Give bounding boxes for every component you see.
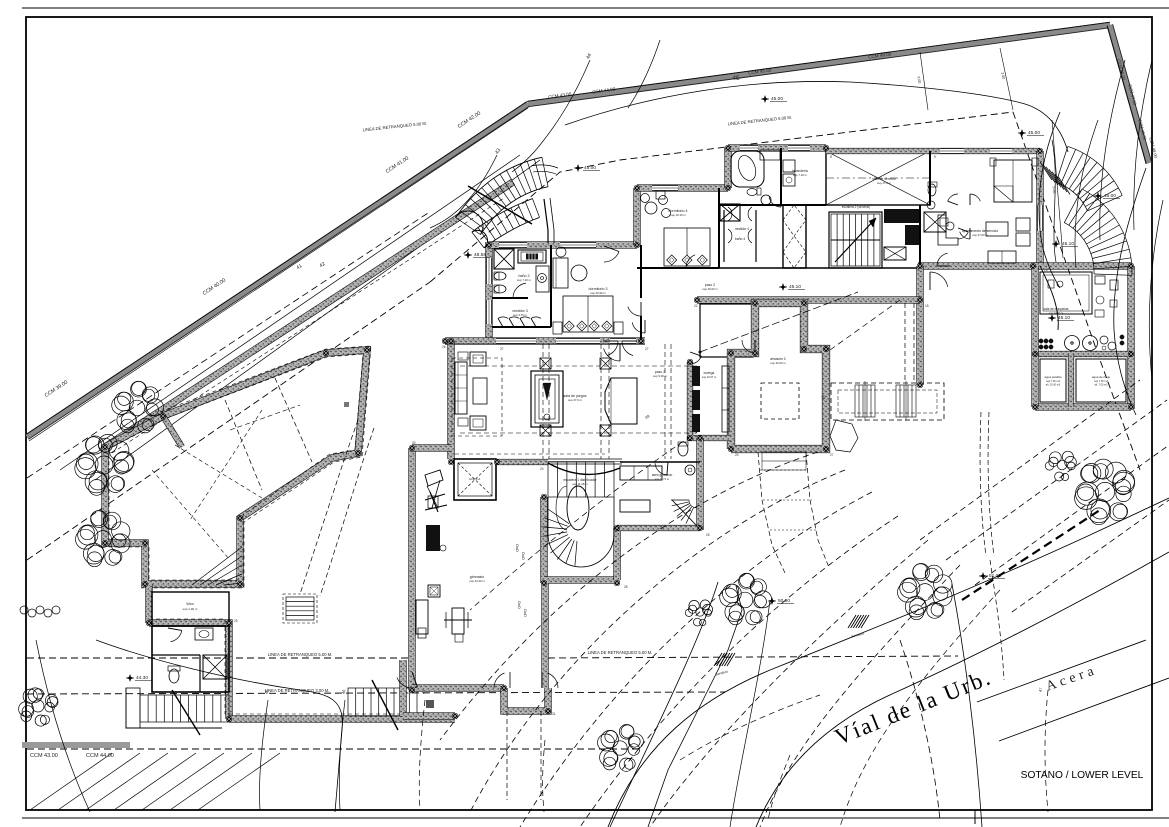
svg-text:sup 29.00 m: sup 29.00 m — [702, 287, 718, 291]
svg-text:45.00: 45.00 — [771, 96, 783, 102]
svg-text:LINEA DE RETRANQUEO 3.00 M.: LINEA DE RETRANQUEO 3.00 M. — [265, 688, 330, 693]
svg-text:CCM 43.00: CCM 43.00 — [30, 753, 58, 759]
svg-text:sup 17.2 m: sup 17.2 m — [877, 181, 892, 185]
svg-text:24: 24 — [735, 453, 739, 457]
svg-text:27: 27 — [500, 347, 504, 351]
svg-text:sup 1.30 m: sup 1.30 m — [183, 607, 198, 611]
svg-text:SOTANO / LOWER LEVEL: SOTANO / LOWER LEVEL — [1021, 770, 1144, 781]
svg-text:sup 27.60 m: sup 27.60 m — [972, 233, 988, 237]
svg-text:DxD: DxD — [517, 601, 522, 609]
svg-text:bodega: bodega — [704, 371, 715, 375]
svg-text:baño 4: baño 4 — [735, 237, 745, 241]
svg-text:27: 27 — [645, 347, 649, 351]
svg-text:alt. 7.00 m3: alt. 7.00 m3 — [1094, 384, 1108, 387]
svg-text:18: 18 — [925, 304, 929, 308]
svg-text:45.00: 45.00 — [1028, 130, 1040, 136]
svg-text:27: 27 — [830, 453, 834, 457]
svg-text:44.30: 44.30 — [136, 675, 148, 681]
svg-text:26: 26 — [442, 345, 446, 349]
svg-text:48.58: 48.58 — [474, 252, 486, 258]
svg-text:45.10: 45.10 — [789, 284, 801, 290]
svg-text:escalera 2 (servicio): escalera 2 (servicio) — [842, 205, 871, 209]
svg-text:26: 26 — [706, 533, 710, 537]
svg-text:45.10: 45.10 — [1058, 315, 1070, 321]
svg-text:24: 24 — [540, 467, 544, 471]
svg-text:31: 31 — [552, 712, 556, 716]
svg-text:sup 11.28 m: sup 11.28 m — [572, 482, 588, 486]
svg-text:5.00: 5.00 — [1052, 186, 1057, 193]
svg-text:45.10: 45.10 — [1062, 241, 1074, 247]
svg-text:14: 14 — [916, 268, 920, 272]
svg-text:sup 16.10 m: sup 16.10 m — [670, 213, 686, 217]
svg-text:sup 44.20 m: sup 44.20 m — [469, 579, 485, 583]
svg-text:Atrio s.d.: Atrio s.d. — [469, 477, 481, 481]
svg-text:CCM 44.00: CCM 44.00 — [86, 753, 114, 759]
svg-text:alt. 10.00 m3: alt. 10.00 m3 — [1046, 384, 1061, 387]
svg-text:sup 10.07 m: sup 10.07 m — [702, 375, 716, 379]
svg-text:sup 33.00 m: sup 33.00 m — [770, 361, 786, 365]
svg-text:16: 16 — [1044, 268, 1048, 272]
svg-text:DxD: DxD — [515, 544, 520, 552]
svg-text:8: 8 — [830, 155, 832, 159]
svg-text:sup 47.6 m: sup 47.6 m — [568, 398, 583, 402]
svg-text:45.00: 45.00 — [584, 165, 596, 171]
svg-text:DxD: DxD — [523, 609, 528, 617]
svg-text:DxD: DxD — [521, 552, 526, 560]
svg-text:sup 24.00 m: sup 24.00 m — [1049, 311, 1063, 315]
svg-text:sup 11.71 m: sup 11.71 m — [655, 477, 669, 481]
svg-text:LINEA DE RETRANQUEO 5.00 M.: LINEA DE RETRANQUEO 5.00 M. — [268, 652, 333, 657]
svg-text:sup 3.75 m: sup 3.75 m — [513, 313, 528, 317]
svg-text:50.80: 50.80 — [778, 598, 790, 604]
svg-text:sup 7.10 m: sup 7.10 m — [793, 173, 808, 177]
svg-text:9: 9 — [934, 155, 936, 159]
svg-text:22: 22 — [694, 304, 698, 308]
svg-text:sup 9.00 m: sup 9.00 m — [653, 374, 668, 378]
svg-text:sup 20.90 m: sup 20.90 m — [590, 291, 606, 295]
svg-text:34: 34 — [408, 691, 412, 695]
svg-text:LINEA DE RETRANQUEO 5.00 M.: LINEA DE RETRANQUEO 5.00 M. — [588, 650, 653, 655]
svg-text:vestidor 4: vestidor 4 — [735, 227, 749, 231]
svg-text:25: 25 — [234, 619, 238, 623]
svg-text:agua de riego: agua de riego — [1092, 375, 1111, 379]
svg-text:sup 7.10 m: sup 7.10 m — [517, 278, 532, 282]
svg-text:28: 28 — [624, 585, 628, 589]
svg-text:Wco: Wco — [186, 602, 194, 606]
svg-text:agua potable: agua potable — [1044, 375, 1062, 379]
svg-text:45: 45 — [732, 75, 740, 82]
svg-text:51.00: 51.00 — [989, 573, 1001, 579]
svg-text:30: 30 — [412, 441, 416, 445]
svg-text:45.00: 45.00 — [1104, 193, 1116, 199]
